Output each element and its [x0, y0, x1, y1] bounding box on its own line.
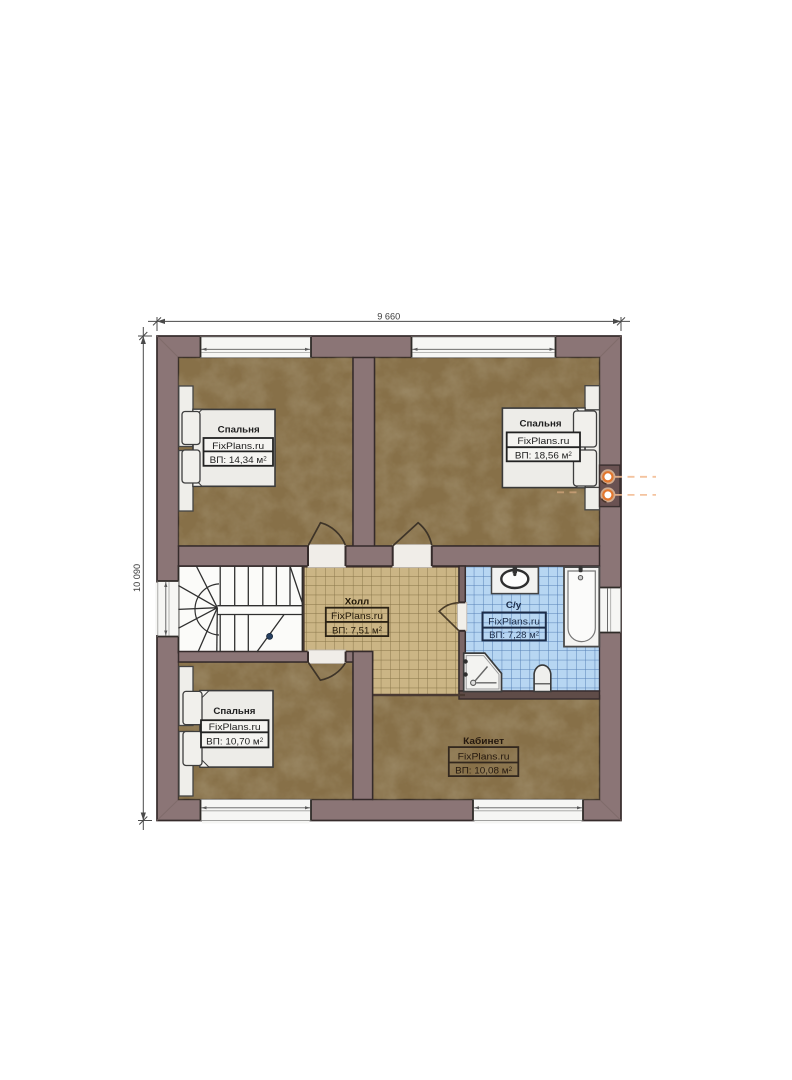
svg-text:ВП: 7,51 м2: ВП: 7,51 м2: [332, 625, 383, 636]
svg-text:ВП: 14,34 м2: ВП: 14,34 м2: [210, 455, 268, 466]
svg-text:ВП: 7,28 м2: ВП: 7,28 м2: [489, 630, 540, 641]
svg-text:ВП: 10,70 м2: ВП: 10,70 м2: [206, 737, 264, 748]
svg-text:ВП: 10,08 м2: ВП: 10,08 м2: [455, 766, 513, 777]
svg-text:Спальня: Спальня: [520, 419, 562, 430]
svg-text:FixPlans.ru: FixPlans.ru: [209, 722, 261, 733]
svg-text:Холл: Холл: [345, 596, 370, 607]
svg-text:FixPlans.ru: FixPlans.ru: [458, 752, 510, 763]
svg-text:ВП: 18,56 м2: ВП: 18,56 м2: [515, 450, 573, 461]
svg-text:FixPlans.ru: FixPlans.ru: [331, 611, 383, 622]
svg-text:FixPlans.ru: FixPlans.ru: [212, 441, 264, 452]
svg-text:FixPlans.ru: FixPlans.ru: [488, 616, 540, 627]
svg-text:Спальня: Спальня: [218, 425, 260, 436]
svg-text:9 660: 9 660: [377, 311, 400, 321]
svg-text:FixPlans.ru: FixPlans.ru: [517, 436, 569, 447]
svg-text:10 090: 10 090: [132, 564, 142, 592]
svg-text:С/у: С/у: [506, 600, 522, 611]
svg-text:Кабинет: Кабинет: [463, 736, 504, 747]
svg-text:Спальня: Спальня: [213, 706, 255, 717]
